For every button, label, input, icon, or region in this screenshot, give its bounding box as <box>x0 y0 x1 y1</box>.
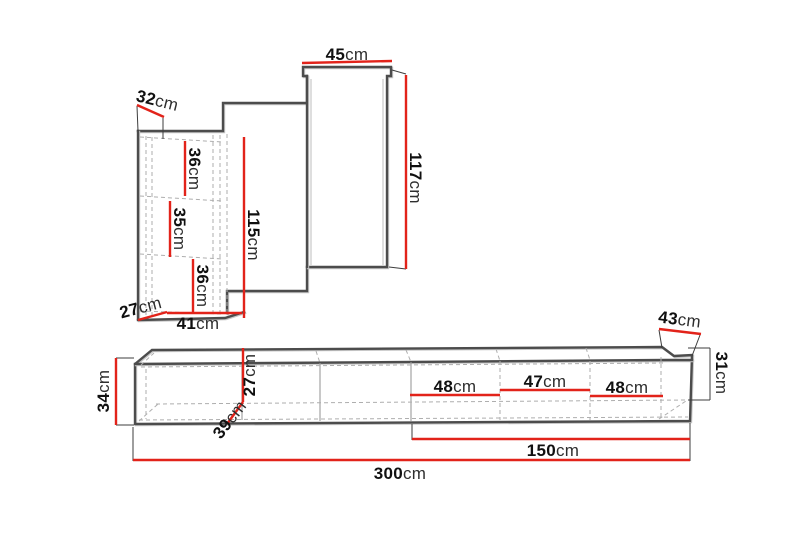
dim-label-27cm-bench: 27cm <box>240 354 259 397</box>
dim-label-31cm: 31cm <box>712 352 731 395</box>
dim-label-34cm: 34cm <box>94 370 113 413</box>
dim-label-36cm-bottom: 36cm <box>193 265 212 308</box>
tv-bench-drawing: 34cm 27cm 39cm 48cm 47cm 48cm 43cm 31cm … <box>94 308 731 483</box>
dim-label-41cm: 41cm <box>177 314 220 333</box>
dim-label-48cm-right: 48cm <box>606 378 649 397</box>
dim-label-48cm-left: 48cm <box>434 377 477 396</box>
dim-label-36cm-top: 36cm <box>185 148 204 191</box>
dim-label-27cm-wall: 27cm <box>117 293 163 322</box>
dim-label-117cm: 117cm <box>406 152 425 204</box>
wall-unit-inner-lines <box>311 79 383 265</box>
dim-label-150cm: 150cm <box>527 441 580 460</box>
dim-label-45cm: 45cm <box>326 45 369 64</box>
diagram-page: 45cm 32cm 117cm 115cm 36cm 35cm 36cm 27c… <box>0 0 800 533</box>
dim-label-115cm: 115cm <box>244 209 263 261</box>
dim-label-32cm: 32cm <box>134 86 180 115</box>
dim-label-47cm: 47cm <box>524 372 567 391</box>
dim-label-43cm: 43cm <box>657 308 702 332</box>
dim-label-300cm: 300cm <box>374 464 427 483</box>
dim-label-35cm: 35cm <box>170 208 189 251</box>
wall-unit-drawing: 45cm 32cm 117cm 115cm 36cm 35cm 36cm 27c… <box>117 45 425 333</box>
bench-dividers <box>242 362 411 421</box>
furniture-dimension-diagram: 45cm 32cm 117cm 115cm 36cm 35cm 36cm 27c… <box>0 0 800 533</box>
